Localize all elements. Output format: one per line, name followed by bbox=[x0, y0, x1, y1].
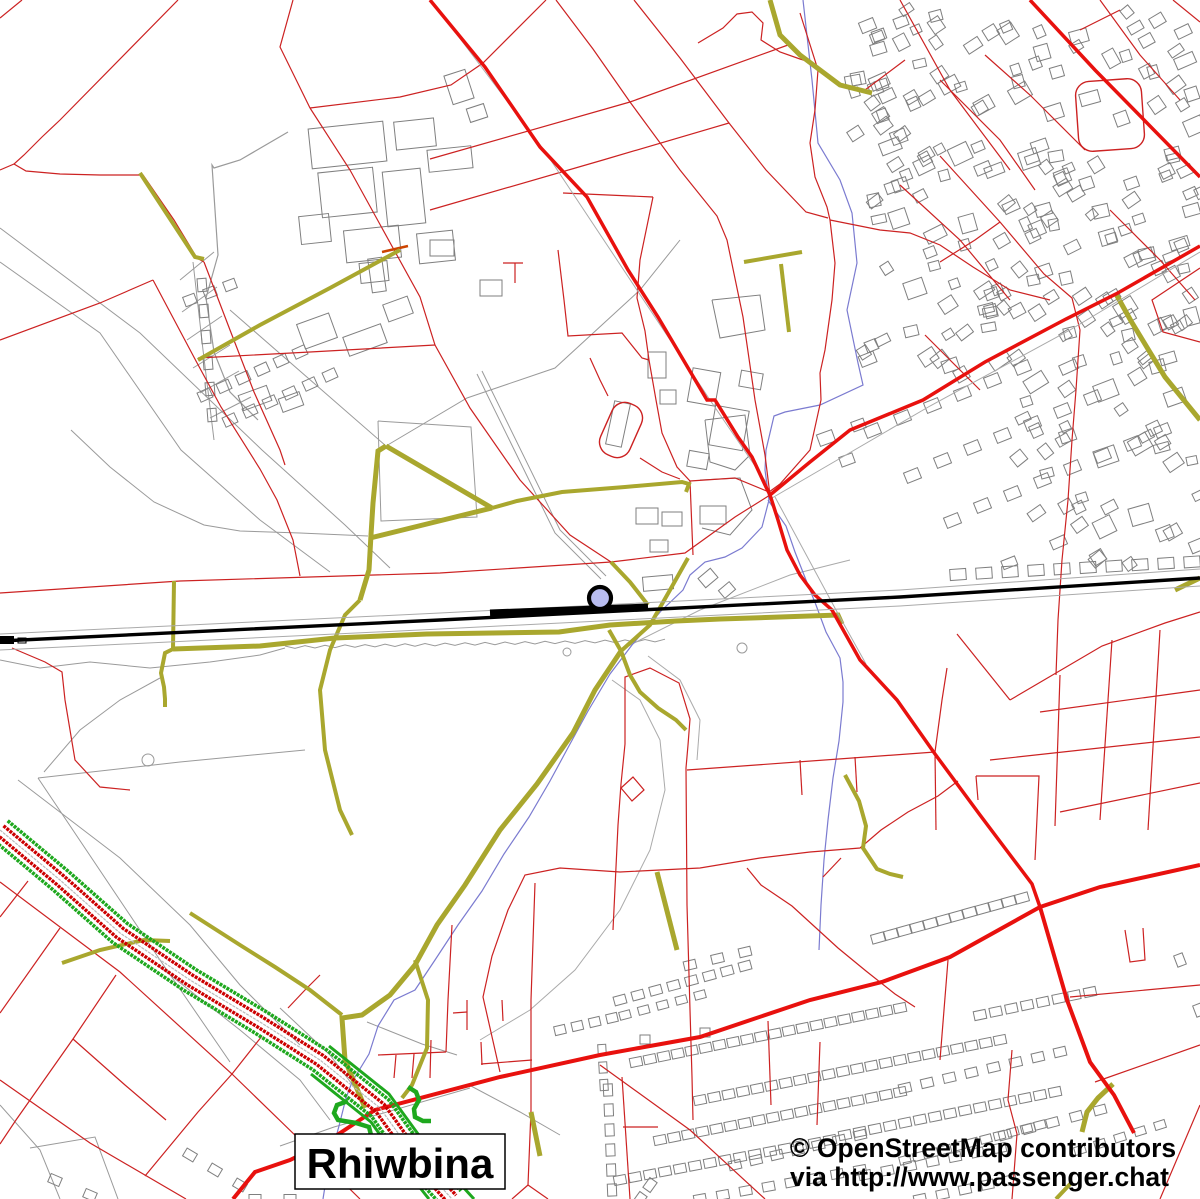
svg-text:via http://www.passenger.chat: via http://www.passenger.chat bbox=[790, 1162, 1169, 1192]
svg-text:Rhiwbina: Rhiwbina bbox=[307, 1140, 494, 1187]
svg-text:© OpenStreetMap contributors: © OpenStreetMap contributors bbox=[790, 1133, 1176, 1163]
